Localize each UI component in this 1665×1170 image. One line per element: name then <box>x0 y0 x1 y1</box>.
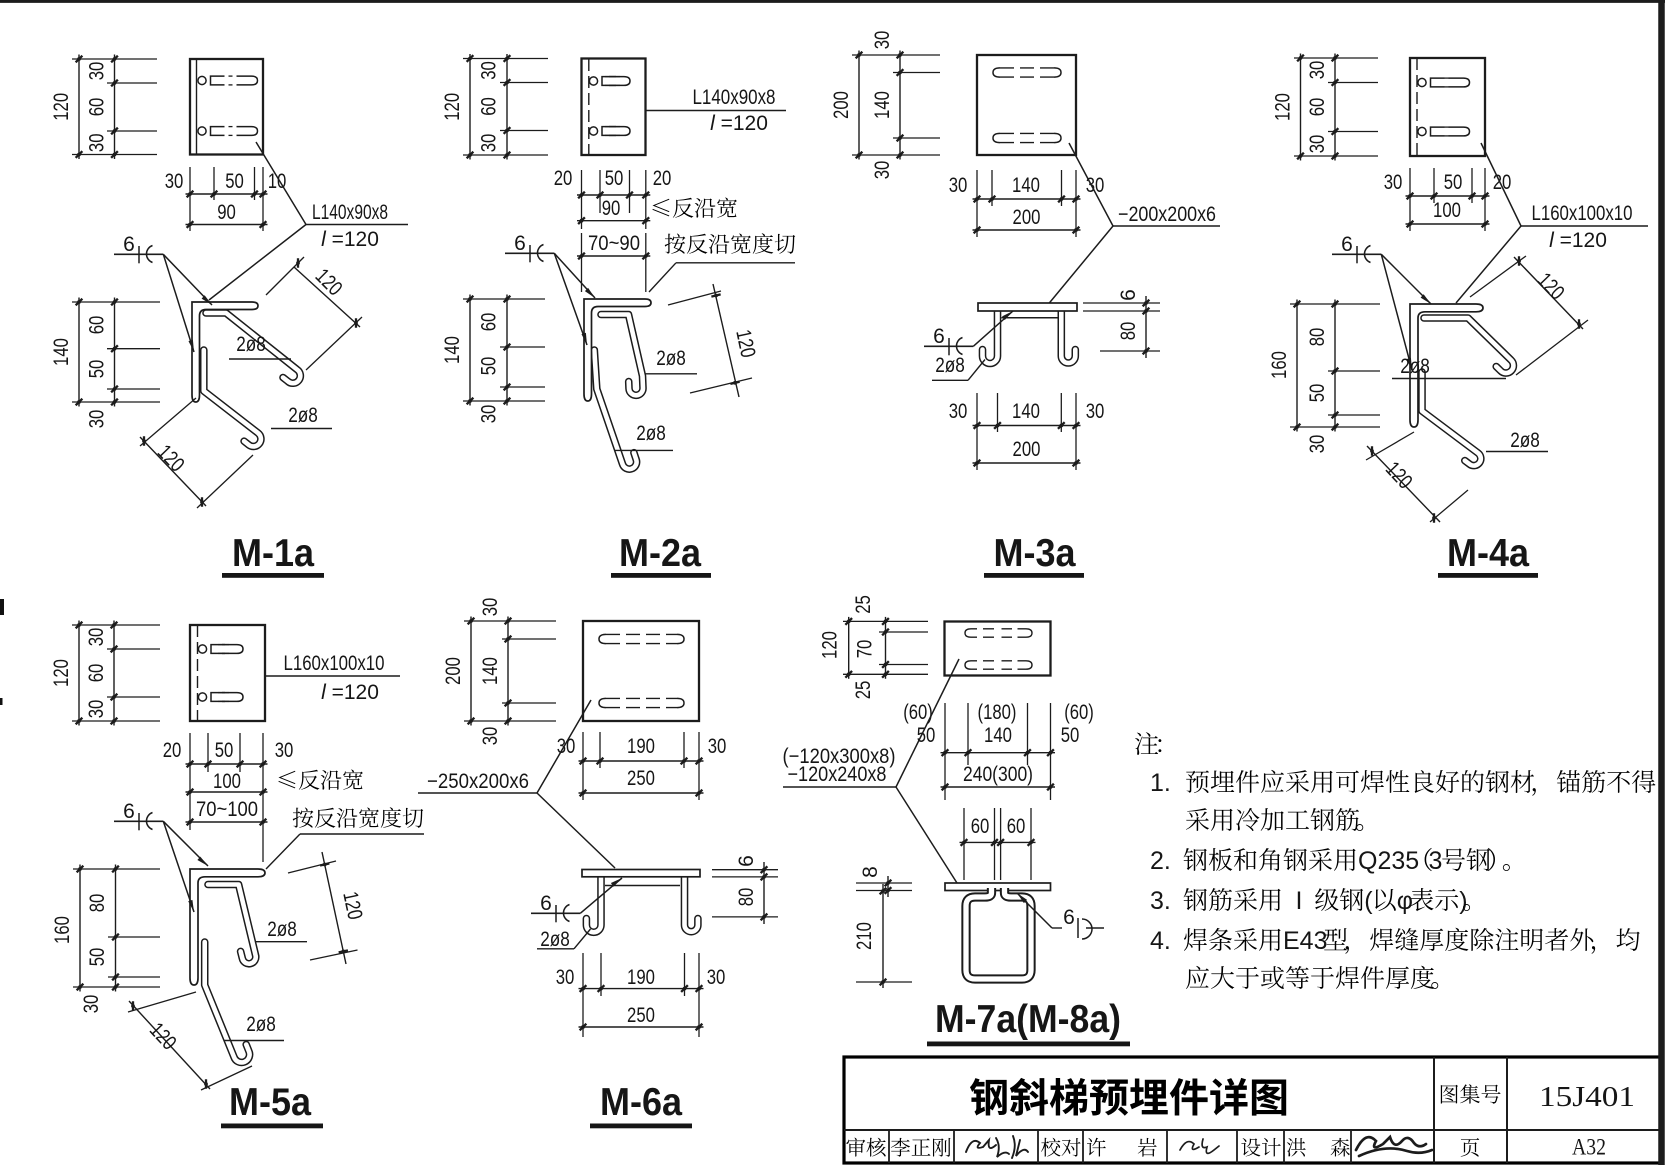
svg-text:L160x100x10: L160x100x10 <box>1532 202 1633 225</box>
svg-text:30: 30 <box>479 598 502 617</box>
svg-text:140: 140 <box>479 657 502 685</box>
svg-text:30: 30 <box>86 410 109 429</box>
svg-text:l =120: l =120 <box>321 228 379 251</box>
svg-text:80: 80 <box>735 888 758 907</box>
svg-text:2ø8: 2ø8 <box>267 918 297 941</box>
svg-text:15J401: 15J401 <box>1539 1081 1635 1113</box>
svg-text:30: 30 <box>871 31 894 50</box>
svg-text:30: 30 <box>275 739 294 762</box>
svg-text:L160x100x10: L160x100x10 <box>284 652 385 675</box>
svg-text:20: 20 <box>554 167 573 190</box>
svg-text:6: 6 <box>123 800 135 823</box>
svg-text:30: 30 <box>1086 400 1105 423</box>
svg-text:3.: 3. <box>1150 887 1171 915</box>
svg-text:30: 30 <box>1306 135 1329 154</box>
svg-text:140: 140 <box>441 336 464 364</box>
svg-text:80: 80 <box>86 894 109 913</box>
svg-text:250: 250 <box>627 1004 655 1027</box>
svg-text:30: 30 <box>85 628 108 647</box>
svg-text:(180): (180) <box>978 701 1017 724</box>
svg-text:60: 60 <box>478 97 501 116</box>
svg-text:70~90: 70~90 <box>588 232 640 255</box>
svg-text:120: 120 <box>50 659 73 687</box>
svg-text:140: 140 <box>1012 400 1040 423</box>
svg-text:I: I <box>1296 887 1303 915</box>
svg-text:30: 30 <box>949 400 968 423</box>
svg-text:200: 200 <box>830 91 853 119</box>
svg-text:30: 30 <box>707 966 726 989</box>
svg-text:120: 120 <box>441 93 464 121</box>
svg-text:−200x200x6: −200x200x6 <box>1118 203 1216 226</box>
svg-text:30: 30 <box>165 170 184 193</box>
svg-text:30: 30 <box>478 61 501 80</box>
svg-text:210: 210 <box>853 922 876 950</box>
svg-text:2ø8: 2ø8 <box>246 1013 276 1036</box>
svg-text:1.: 1. <box>1150 769 1171 797</box>
svg-text:2ø8: 2ø8 <box>1510 429 1540 452</box>
svg-text:30: 30 <box>949 174 968 197</box>
svg-text:100: 100 <box>1433 199 1461 222</box>
svg-text:200: 200 <box>1013 206 1041 229</box>
svg-text:80: 80 <box>1117 322 1140 341</box>
svg-text:50: 50 <box>1061 724 1080 747</box>
svg-text:2ø8: 2ø8 <box>656 347 686 370</box>
svg-text:20: 20 <box>163 739 182 762</box>
svg-text:30: 30 <box>478 134 501 153</box>
svg-text:6: 6 <box>123 233 135 256</box>
svg-text:120: 120 <box>50 93 73 121</box>
svg-text:190: 190 <box>627 735 655 758</box>
svg-text:100: 100 <box>213 770 241 793</box>
svg-text:60: 60 <box>86 98 109 117</box>
svg-text:30: 30 <box>479 727 502 746</box>
svg-text:50: 50 <box>1306 384 1329 403</box>
svg-text:E43: E43 <box>1283 927 1327 955</box>
svg-text:200: 200 <box>442 657 465 685</box>
svg-text:50: 50 <box>605 167 624 190</box>
svg-text:140: 140 <box>984 724 1012 747</box>
svg-text:200: 200 <box>1013 438 1041 461</box>
svg-text:2ø8: 2ø8 <box>540 928 570 951</box>
svg-text:−120x240x8: −120x240x8 <box>788 763 887 786</box>
svg-text:30: 30 <box>86 134 109 153</box>
svg-text:2ø8: 2ø8 <box>288 404 318 427</box>
svg-text:50: 50 <box>215 739 234 762</box>
svg-text:140: 140 <box>1012 174 1040 197</box>
svg-text:8: 8 <box>859 866 882 878</box>
svg-text:10: 10 <box>268 170 287 193</box>
svg-text:250: 250 <box>627 767 655 790</box>
svg-text:2ø8: 2ø8 <box>935 354 965 377</box>
svg-text:L140x90x8: L140x90x8 <box>693 86 776 109</box>
svg-text:160: 160 <box>1268 351 1291 379</box>
svg-text:3: 3 <box>1429 847 1443 875</box>
svg-text:30: 30 <box>556 966 575 989</box>
svg-text:l =120: l =120 <box>1549 229 1607 252</box>
svg-text:60: 60 <box>478 313 501 332</box>
svg-text:50: 50 <box>1444 171 1463 194</box>
svg-text:30: 30 <box>1384 171 1403 194</box>
svg-text:6: 6 <box>514 232 526 255</box>
svg-text:60: 60 <box>971 815 990 838</box>
svg-text:80: 80 <box>1306 328 1329 347</box>
svg-text:20: 20 <box>653 167 672 190</box>
svg-text:70~100: 70~100 <box>196 798 258 821</box>
svg-text:L140x90x8: L140x90x8 <box>312 201 388 224</box>
svg-text:90: 90 <box>217 201 236 224</box>
svg-text:30: 30 <box>1306 61 1329 80</box>
svg-text:90: 90 <box>602 197 621 220</box>
svg-text:25: 25 <box>852 681 875 700</box>
svg-text:M-3a: M-3a <box>994 532 1076 575</box>
svg-text:2ø8: 2ø8 <box>236 333 266 356</box>
svg-text:−250x200x6: −250x200x6 <box>427 770 529 793</box>
svg-text:25: 25 <box>852 595 875 614</box>
svg-text:6: 6 <box>1341 233 1353 256</box>
svg-text:6: 6 <box>735 855 758 867</box>
svg-text:6: 6 <box>933 325 945 348</box>
svg-text:120: 120 <box>819 631 842 659</box>
svg-text:6: 6 <box>1117 289 1140 301</box>
svg-text:120: 120 <box>1272 93 1295 121</box>
svg-text:M-2a: M-2a <box>619 532 701 575</box>
svg-text:70: 70 <box>854 640 877 659</box>
svg-text:30: 30 <box>871 161 894 180</box>
svg-text:2.: 2. <box>1150 847 1171 875</box>
svg-text:6: 6 <box>1063 906 1075 929</box>
svg-text:140: 140 <box>50 338 73 366</box>
svg-text:30: 30 <box>1306 435 1329 454</box>
svg-text:2ø8: 2ø8 <box>1400 355 1430 378</box>
svg-text:30: 30 <box>708 735 727 758</box>
svg-text:60: 60 <box>85 664 108 683</box>
svg-text:(: ( <box>1364 887 1373 915</box>
svg-text:50: 50 <box>86 360 109 379</box>
svg-text:4.: 4. <box>1150 927 1171 955</box>
svg-text:M-1a: M-1a <box>232 532 314 575</box>
svg-text:l =120: l =120 <box>321 681 379 704</box>
svg-text:50: 50 <box>478 357 501 376</box>
svg-text:60: 60 <box>86 316 109 335</box>
svg-text:6: 6 <box>540 892 552 915</box>
svg-text:M-5a: M-5a <box>229 1081 311 1124</box>
svg-text:190: 190 <box>627 966 655 989</box>
svg-text:140: 140 <box>871 91 894 119</box>
svg-text:M-7a(M-8a): M-7a(M-8a) <box>935 998 1121 1041</box>
svg-text:A32: A32 <box>1572 1135 1606 1160</box>
svg-text:60: 60 <box>1306 98 1329 117</box>
svg-text:Q235: Q235 <box>1358 847 1419 875</box>
svg-text:50: 50 <box>86 948 109 967</box>
svg-text:M-6a: M-6a <box>600 1081 682 1124</box>
svg-text:2ø8: 2ø8 <box>636 422 666 445</box>
svg-text:φ: φ <box>1397 887 1413 915</box>
svg-text:30: 30 <box>86 62 109 81</box>
svg-text:30: 30 <box>478 405 501 424</box>
svg-text:240(300): 240(300) <box>963 763 1033 786</box>
svg-text:30: 30 <box>80 995 103 1014</box>
svg-text:50: 50 <box>225 170 244 193</box>
svg-text:(60): (60) <box>1064 701 1094 724</box>
svg-text:160: 160 <box>51 916 74 944</box>
svg-text:60: 60 <box>1007 815 1026 838</box>
svg-text:30: 30 <box>85 700 108 719</box>
svg-text:M-4a: M-4a <box>1447 532 1529 575</box>
svg-text:l =120: l =120 <box>710 112 768 135</box>
